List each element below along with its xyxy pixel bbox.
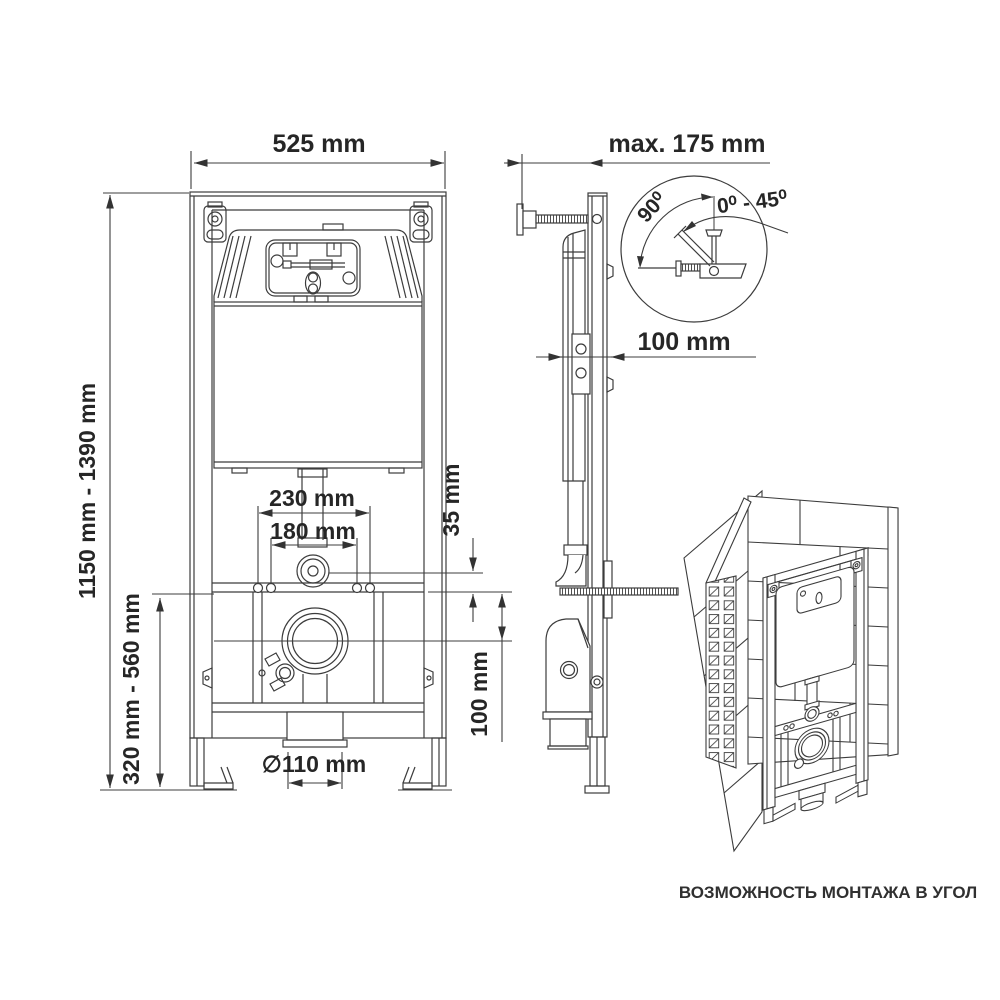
label-height-range: 1150 mm - 1390 mm: [74, 383, 100, 599]
label-max-depth: max. 175 mm: [608, 130, 765, 158]
corner-mount-3d-view: [684, 491, 898, 851]
technical-drawing-svg: 525 mm max. 175 mm 100 mm 1150 mm - 1390…: [0, 0, 1000, 1000]
side-cistern-profile: [563, 230, 590, 481]
cistern: [214, 224, 422, 473]
installation-drawing: 525 mm max. 175 mm 100 mm 1150 mm - 1390…: [0, 0, 1000, 1000]
dim-height-320-560: [152, 594, 214, 787]
side-flush-pipe: [556, 481, 587, 586]
label-frame-depth: 100 mm: [637, 328, 730, 356]
label-elbow-offset: 35 mm: [438, 464, 464, 537]
dim-height-1150-1390: [103, 193, 189, 788]
corner-mount-caption: ВОЗМОЖНОСТЬ МОНТАЖА В УГОЛ: [679, 883, 977, 902]
label-bowl-height-range: 320 mm - 560 mm: [118, 593, 144, 785]
label-angle-range: 0⁰ - 45⁰: [716, 187, 789, 218]
side-frame-bar: [588, 193, 607, 737]
label-outlet-diameter: ∅110 mm: [262, 751, 366, 777]
label-angle-90: 90⁰: [633, 188, 672, 227]
label-outlet-drop: 100 mm: [466, 651, 492, 737]
label-bolt-spacing: 180 mm: [270, 518, 356, 544]
side-threaded-rod: [560, 588, 678, 595]
mounting-bracket-right: [410, 202, 432, 242]
label-flush-spacing: 230 mm: [269, 485, 355, 511]
label-width: 525 mm: [272, 130, 365, 158]
side-view: [517, 193, 678, 793]
mounting-bracket-left: [204, 202, 226, 242]
dimension-lines: [100, 151, 770, 790]
